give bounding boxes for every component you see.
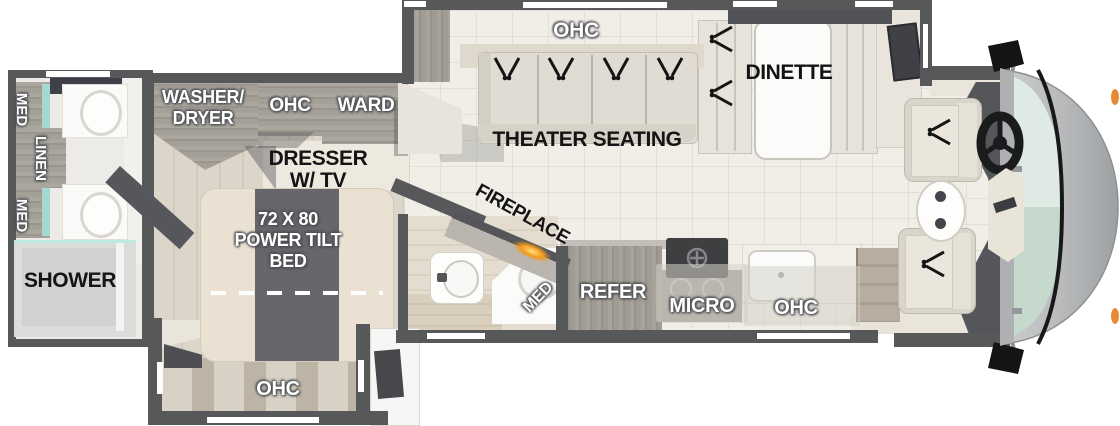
teal-accent <box>42 188 50 236</box>
linen-label: LINEN <box>30 128 50 188</box>
toilet-flush <box>437 273 447 282</box>
wall-slideout-left <box>402 0 414 84</box>
recline-indicator-icon <box>925 117 953 147</box>
recline-indicator-icon <box>546 56 576 82</box>
frame-tab <box>1012 308 1022 314</box>
bed-label-line1: 72 X 80 <box>258 209 318 230</box>
table-dot <box>935 218 946 229</box>
dinette-bench-right <box>830 20 878 154</box>
dinette-label: DINETTE <box>742 60 836 86</box>
washer-dryer-label: WASHER/ DRYER <box>150 86 256 130</box>
steering-wheel-icon <box>976 110 1024 176</box>
teal-accent <box>42 84 50 128</box>
wall-bath-left <box>398 214 408 334</box>
marker-light <box>1111 308 1119 324</box>
slide-indicator <box>358 360 364 392</box>
slide-indicator <box>733 1 777 7</box>
theater-seating-label: THEATER SEATING <box>478 127 696 153</box>
side-mirror-icon <box>988 342 1024 374</box>
slide-indicator <box>427 333 485 339</box>
sink-icon <box>80 90 122 136</box>
med-label-bottom: MED <box>12 190 32 240</box>
recline-indicator-icon <box>655 56 685 82</box>
micro-label: MICRO <box>656 294 748 318</box>
wall-slideout-top <box>402 0 932 10</box>
console-vent <box>993 197 1017 213</box>
shower-label: SHOWER <box>20 268 120 294</box>
dinette-fascia <box>728 10 892 24</box>
theater-ohc-label: OHC <box>448 19 704 43</box>
slide-indicator <box>207 417 319 423</box>
chair-back <box>951 233 971 309</box>
sink-icon <box>80 192 122 238</box>
washer-dryer-label-line2: DRYER <box>173 108 234 129</box>
ohc-bedroom-label: OHC <box>258 96 322 116</box>
recline-indicator-icon <box>708 24 734 54</box>
slide-indicator <box>923 24 928 68</box>
wall-bedroom-top <box>142 73 404 83</box>
cab-table <box>916 180 966 242</box>
ward-label: WARD <box>324 96 408 116</box>
bed-fold-dashes <box>211 291 383 295</box>
chair-back <box>957 103 977 177</box>
toilet-bowl <box>443 260 479 298</box>
recline-indicator-icon <box>919 249 947 279</box>
recline-indicator-icon <box>492 56 522 82</box>
table-dot <box>935 191 946 202</box>
dresser-label-line2: W/ TV <box>250 170 386 192</box>
slide-indicator <box>46 71 110 77</box>
bench-seam <box>846 23 848 151</box>
dinette-table <box>754 20 832 160</box>
bench-seam <box>734 23 736 151</box>
recline-indicator-icon <box>708 78 734 108</box>
refer-label: REFER <box>564 281 662 303</box>
slide-indicator <box>404 1 426 7</box>
ohc-kitchen-label: OHC <box>756 296 836 320</box>
bed-label-line3: BED <box>269 251 306 272</box>
wall-bottom-left-seg <box>142 331 162 345</box>
dresser-label-line1: DRESSER <box>250 148 386 170</box>
center-console <box>988 168 1024 262</box>
bed-label: 72 X 80 POWER TILT BED <box>198 206 378 274</box>
bench-seam <box>862 23 864 151</box>
med-label-top: MED <box>12 86 32 132</box>
slide-indicator <box>855 1 893 7</box>
marker-light <box>1111 89 1119 105</box>
slideout-window <box>374 349 404 399</box>
side-mirror-icon <box>988 40 1024 72</box>
rv-floorplan: MED LINEN MED SHOWER WASHER/ DRYER OHC W… <box>0 0 1120 426</box>
bed-label-line2: POWER TILT <box>235 230 342 251</box>
recline-indicator-icon <box>601 56 631 82</box>
entry-steps <box>856 248 900 322</box>
ohc-slideout-label: OHC <box>226 377 330 401</box>
toilet-icon <box>430 252 484 304</box>
slide-indicator <box>523 2 667 8</box>
slide-indicator <box>757 333 850 339</box>
slide-indicator <box>157 362 163 394</box>
washer-dryer-label-line1: WASHER/ <box>162 87 244 108</box>
